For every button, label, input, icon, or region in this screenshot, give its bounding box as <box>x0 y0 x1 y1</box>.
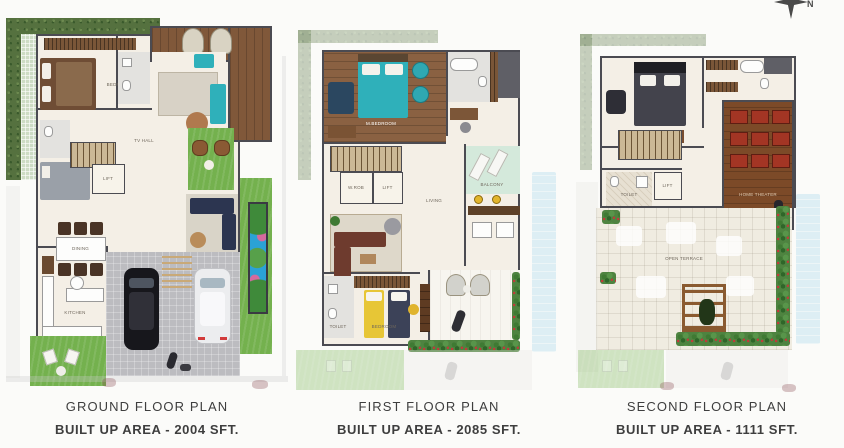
plan-area: BUILT UP AREA - 2004 SFT. <box>6 422 288 437</box>
round-table <box>463 285 471 293</box>
wc <box>760 78 769 89</box>
pillow <box>362 64 380 75</box>
planter <box>600 272 616 284</box>
rug <box>158 72 218 116</box>
headboard <box>634 62 686 73</box>
dining-chair <box>58 222 71 235</box>
floor-plans-sheet: N BEDROOM <box>0 0 844 448</box>
lift: LIFT <box>373 172 403 204</box>
wardrobe <box>490 52 498 102</box>
planter <box>776 206 790 334</box>
garden-chair <box>64 348 80 365</box>
pillow <box>640 75 656 86</box>
person-figure <box>451 309 467 333</box>
bed <box>358 54 408 118</box>
theater-seat <box>730 132 748 146</box>
garden-table <box>56 366 66 376</box>
wc <box>122 80 131 91</box>
plan-title: GROUND FLOOR PLAN <box>6 399 288 414</box>
armchair <box>606 90 626 114</box>
wicker-chair <box>192 140 208 156</box>
armchair <box>412 62 429 79</box>
room-label: LIVING <box>404 198 464 204</box>
pillow <box>385 64 403 75</box>
car-white <box>194 268 231 344</box>
plan-title: FIRST FLOOR PLAN <box>296 399 562 414</box>
room-label: DINING <box>57 246 104 252</box>
garden-chair <box>326 360 336 372</box>
hedge-ghost <box>580 34 592 170</box>
planter <box>676 332 790 346</box>
wc <box>610 176 619 187</box>
pillow <box>664 75 680 86</box>
wall <box>600 168 682 170</box>
room-label: W.ROB <box>341 185 371 191</box>
wardrobe <box>44 38 136 50</box>
bed <box>388 290 410 338</box>
hedge <box>6 18 21 180</box>
compound-wall <box>282 56 286 376</box>
room-label: LIFT <box>93 176 123 182</box>
flower-pot <box>102 378 116 387</box>
bar-counter <box>468 206 520 215</box>
papasan-chair <box>384 218 401 235</box>
second-floor-caption: SECOND FLOOR PLAN BUILT UP AREA - 1111 S… <box>576 399 838 437</box>
sideboard <box>328 126 356 138</box>
wc <box>328 308 337 319</box>
wicker-chair <box>214 140 230 156</box>
taillight <box>220 337 227 340</box>
pantry-unit <box>496 222 514 238</box>
plant <box>699 299 715 325</box>
wall <box>702 56 704 128</box>
utility-shaft <box>498 52 520 98</box>
wardrobe <box>706 82 738 92</box>
theater-seat <box>751 154 769 168</box>
washbasin <box>328 284 338 294</box>
walkway-ghost <box>576 182 598 372</box>
bed <box>364 290 384 338</box>
hedge-ghost <box>580 34 706 46</box>
coffee-table <box>360 254 376 264</box>
blanket <box>56 62 92 106</box>
room-label: HOME THEATER <box>732 192 784 198</box>
lounger <box>469 153 491 181</box>
plan-area: BUILT UP AREA - 2085 SFT. <box>296 422 562 437</box>
lounger <box>487 149 509 177</box>
terrace-furniture-ghost <box>616 226 642 246</box>
headboard <box>358 54 408 62</box>
washbasin <box>122 58 132 67</box>
car-black <box>124 268 159 350</box>
garden-chair <box>618 360 628 372</box>
lounge-chair <box>210 28 232 54</box>
bathtub <box>740 60 764 73</box>
room-label: TOILET <box>608 192 650 198</box>
sofa <box>334 247 351 277</box>
bed <box>634 62 686 126</box>
wood-deck <box>228 26 272 142</box>
wardrobe <box>706 60 738 70</box>
room-label: KITCHEN <box>52 310 98 316</box>
armchair <box>412 86 429 103</box>
study-desk <box>450 108 478 120</box>
pantry-unit <box>472 222 492 238</box>
dining-chair <box>90 263 103 276</box>
pool-ghost <box>532 172 556 352</box>
rug <box>328 82 354 114</box>
first-floor-plan: M.BEDROOM W.ROB LIFT LIVING BALCONY <box>296 22 562 390</box>
desk-chair <box>460 122 471 133</box>
bed <box>40 58 96 110</box>
toilet: TOILET <box>606 172 652 206</box>
taillight <box>198 337 205 340</box>
dining-chair <box>58 263 71 276</box>
pillow <box>42 166 50 178</box>
bathtub <box>450 58 478 71</box>
plan-area: BUILT UP AREA - 1111 SFT. <box>576 422 838 437</box>
tall-unit <box>42 256 54 274</box>
room-label: TV HALL <box>114 138 174 144</box>
pillow <box>366 292 382 301</box>
flower-pot <box>252 380 268 389</box>
lift: LIFT <box>654 172 682 200</box>
terrace-furniture-ghost <box>726 276 754 296</box>
dining-chair <box>74 263 87 276</box>
hedge <box>6 18 160 34</box>
wall <box>324 142 446 144</box>
trellis <box>162 254 192 288</box>
wc <box>44 126 53 137</box>
garden-chair <box>42 348 58 365</box>
bar-stool <box>492 195 501 204</box>
room-label: LIFT <box>655 183 680 189</box>
armchair <box>408 304 419 315</box>
theater-seat <box>730 110 748 124</box>
garden-chair <box>602 360 612 372</box>
toilet <box>118 52 150 104</box>
sofa <box>190 198 234 214</box>
wardrobe-room: W.ROB <box>340 172 373 204</box>
car-roof <box>200 292 225 326</box>
terrace-furniture-ghost <box>636 276 666 298</box>
plan-title: SECOND FLOOR PLAN <box>576 399 838 414</box>
pillow <box>42 86 51 102</box>
hedge-ghost <box>298 30 438 43</box>
dog-figure <box>180 364 191 371</box>
dining-table: DINING <box>56 237 106 261</box>
theater-seat <box>772 154 790 168</box>
sofa <box>194 54 214 68</box>
toilet <box>448 52 490 102</box>
flower-pot <box>660 382 674 390</box>
ground-floor-caption: GROUND FLOOR PLAN BUILT UP AREA - 2004 S… <box>6 399 288 437</box>
planter <box>512 272 520 340</box>
theater-seat <box>772 132 790 146</box>
second-floor-plan: BEDROOM HOME THEATER TOILET <box>576 26 838 392</box>
compass-icon <box>774 0 808 19</box>
road-ghost <box>6 186 20 378</box>
room-label: BEDROOM <box>358 324 410 330</box>
armchair <box>190 232 206 248</box>
terrace <box>430 270 520 342</box>
wc <box>478 76 487 87</box>
room-label: OPEN TERRACE <box>654 256 714 262</box>
car-roof <box>129 292 154 330</box>
bathroom <box>40 120 70 158</box>
round-table <box>204 160 214 170</box>
pool-ghost <box>796 194 820 344</box>
compass-north-label: N <box>807 0 814 9</box>
theater-seat <box>730 154 748 168</box>
garden-chair <box>342 360 352 372</box>
water-pond <box>248 202 268 314</box>
sofa <box>334 232 386 247</box>
lounge-chair <box>182 28 204 54</box>
plant <box>330 216 340 226</box>
bar-stool <box>474 195 483 204</box>
courtyard <box>188 128 234 190</box>
ground-floor-plan: BEDROOM LIFT TV HALL <box>6 16 288 390</box>
lounge-chair <box>470 274 490 296</box>
terrace-furniture-ghost <box>716 236 742 256</box>
staircase <box>330 146 402 172</box>
hedge-ghost <box>298 30 311 180</box>
compound-wall <box>6 376 288 382</box>
sofa <box>210 84 226 124</box>
dining-chair <box>74 222 87 235</box>
toilet: TOILET <box>324 276 354 338</box>
pillow <box>42 63 51 79</box>
kitchen-island <box>66 288 104 302</box>
room-label: TOILET <box>324 324 352 330</box>
pergola <box>682 284 726 332</box>
theater-seat <box>772 110 790 124</box>
utility-shaft <box>764 58 792 74</box>
car-windshield <box>129 278 154 288</box>
sink <box>70 276 84 290</box>
room-label: M.BEDROOM <box>354 121 408 127</box>
open-terrace: OPEN TERRACE <box>596 208 792 350</box>
first-floor-caption: FIRST FLOOR PLAN BUILT UP AREA - 2085 SF… <box>296 399 562 437</box>
sofa <box>222 214 236 250</box>
lounge-chair <box>446 274 466 296</box>
terrace-furniture-ghost <box>666 222 696 244</box>
balcony: BALCONY <box>466 146 520 194</box>
flower-pot <box>782 384 796 392</box>
theater-seat <box>751 132 769 146</box>
walkway-ghost <box>404 350 532 390</box>
lift: LIFT <box>92 164 125 194</box>
room-label: BALCONY <box>470 182 514 188</box>
shower <box>636 176 648 188</box>
staircase <box>618 130 682 160</box>
car-windshield <box>200 278 225 288</box>
dining-chair <box>90 222 103 235</box>
theater-seat <box>751 110 769 124</box>
planter <box>602 210 620 224</box>
room-label: LIFT <box>374 185 401 191</box>
pillow <box>391 292 407 301</box>
